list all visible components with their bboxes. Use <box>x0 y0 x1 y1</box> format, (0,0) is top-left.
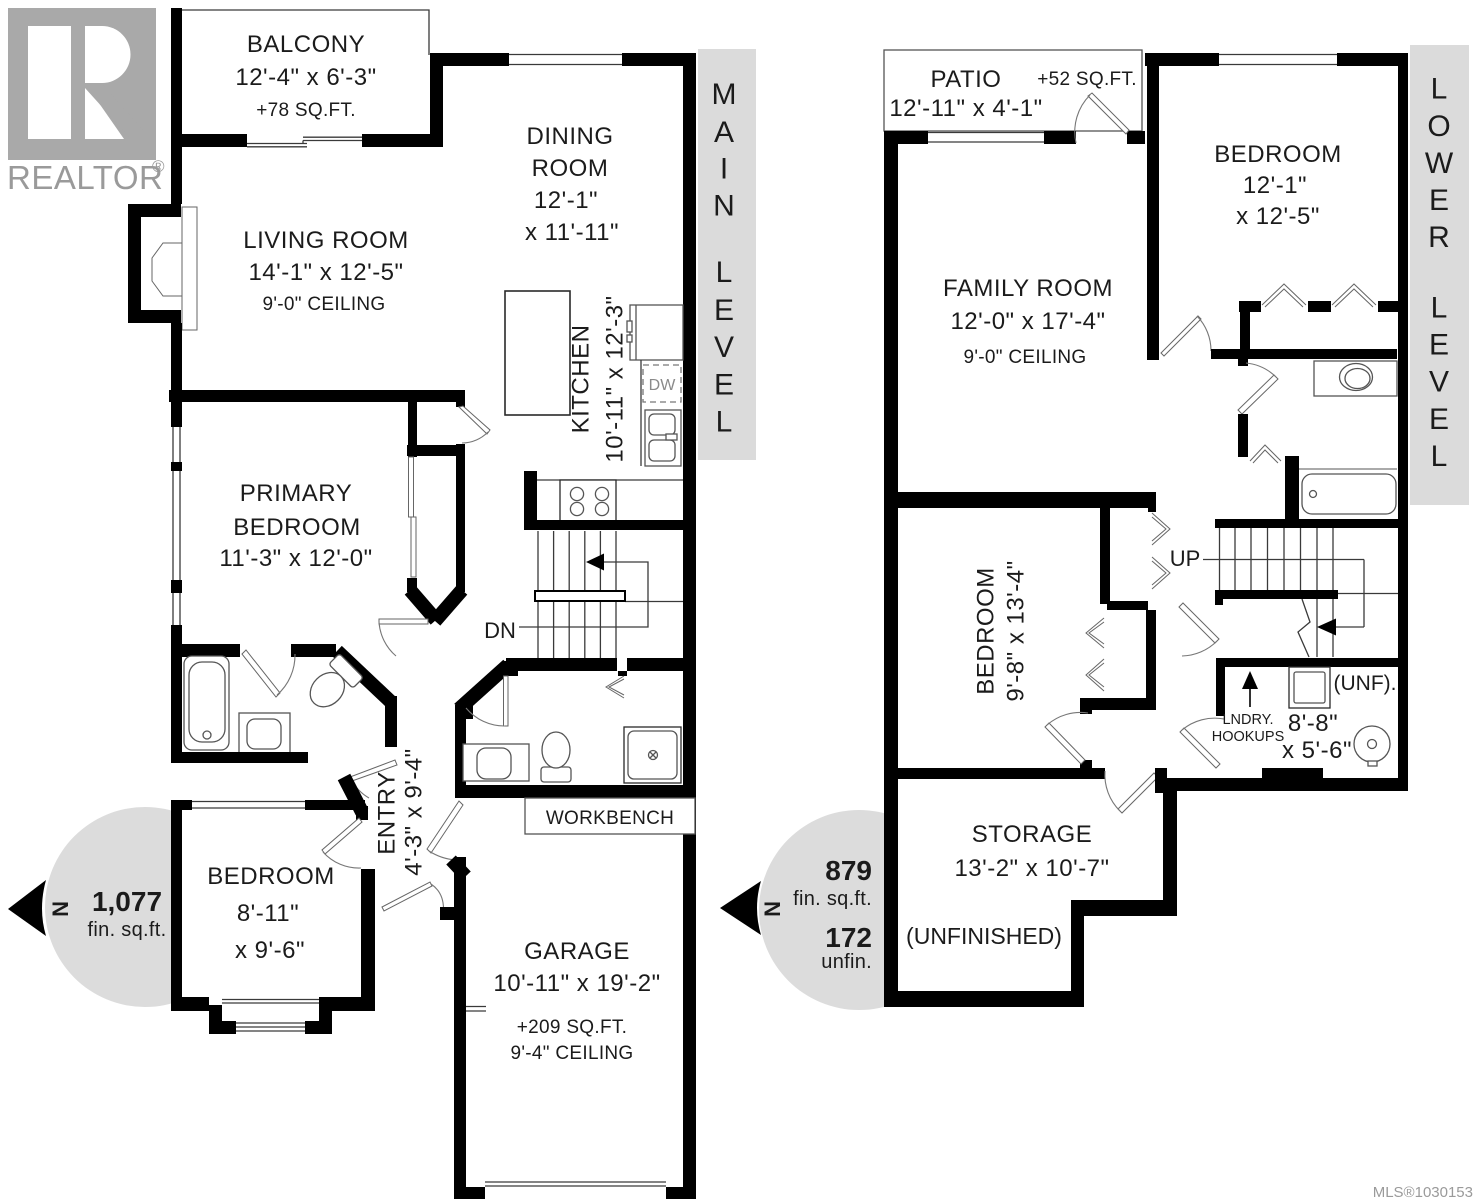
svg-text:(UNFINISHED): (UNFINISHED) <box>906 923 1062 949</box>
svg-text:L: L <box>1431 292 1448 325</box>
svg-text:E: E <box>1429 184 1449 217</box>
svg-text:UP: UP <box>1170 546 1201 571</box>
svg-text:13'-2" x 10'-7": 13'-2" x 10'-7" <box>954 855 1109 882</box>
svg-text:fin. sq.ft.: fin. sq.ft. <box>793 888 872 910</box>
svg-text:+78 SQ.FT.: +78 SQ.FT. <box>256 100 356 121</box>
svg-text:DW: DW <box>649 377 677 394</box>
svg-text:12'-4" x 6'-3": 12'-4" x 6'-3" <box>235 64 376 91</box>
svg-text:O: O <box>1427 110 1450 143</box>
svg-text:R: R <box>1428 221 1450 254</box>
svg-text:879: 879 <box>825 855 872 886</box>
svg-text:GARAGE: GARAGE <box>524 938 630 965</box>
svg-text:PRIMARY: PRIMARY <box>240 480 352 507</box>
svg-text:V: V <box>714 331 734 364</box>
svg-text:172: 172 <box>825 922 872 953</box>
svg-text:8'-11": 8'-11" <box>237 900 299 927</box>
svg-text:10'-11" x 19'-2": 10'-11" x 19'-2" <box>493 970 660 997</box>
svg-text:E: E <box>714 294 734 327</box>
svg-text:8'-8": 8'-8" <box>1288 710 1338 737</box>
svg-text:9'-0" CEILING: 9'-0" CEILING <box>963 347 1086 368</box>
svg-text:+52 SQ.FT.: +52 SQ.FT. <box>1037 69 1137 90</box>
svg-text:L: L <box>1431 73 1448 106</box>
svg-text:14'-1" x 12'-5": 14'-1" x 12'-5" <box>248 259 403 286</box>
svg-text:L: L <box>1431 440 1448 473</box>
svg-text:WORKBENCH: WORKBENCH <box>546 808 674 829</box>
svg-text:9'-4" CEILING: 9'-4" CEILING <box>510 1043 633 1064</box>
svg-text:N: N <box>48 901 73 917</box>
svg-text:unfin.: unfin. <box>821 951 872 973</box>
svg-text:x 12'-5": x 12'-5" <box>1236 203 1320 230</box>
svg-text:N: N <box>713 190 735 223</box>
svg-text:LIVING ROOM: LIVING ROOM <box>243 227 409 254</box>
svg-text:fin. sq.ft.: fin. sq.ft. <box>88 919 167 941</box>
svg-text:x 5'-6": x 5'-6" <box>1282 737 1352 764</box>
svg-text:12'-1": 12'-1" <box>1243 172 1307 199</box>
svg-text:A: A <box>714 116 734 149</box>
svg-text:BALCONY: BALCONY <box>247 31 365 58</box>
svg-text:REALTOR: REALTOR <box>7 159 163 196</box>
svg-text:BEDROOM: BEDROOM <box>207 863 335 890</box>
svg-text:MLS®1030153: MLS®1030153 <box>1373 1184 1473 1200</box>
svg-text:N: N <box>760 901 785 917</box>
svg-text:BEDROOM: BEDROOM <box>1214 141 1342 168</box>
svg-text:+209 SQ.FT.: +209 SQ.FT. <box>517 1017 628 1038</box>
svg-text:12'-0" x 17'-4": 12'-0" x 17'-4" <box>950 308 1105 335</box>
svg-text:x 9'-6": x 9'-6" <box>235 937 305 964</box>
svg-text:M: M <box>712 78 737 111</box>
svg-text:V: V <box>1429 366 1449 399</box>
svg-text:1,077: 1,077 <box>92 886 162 917</box>
svg-text:9'-8" x 13'-4": 9'-8" x 13'-4" <box>1003 560 1030 701</box>
svg-text:L: L <box>716 256 733 289</box>
svg-text:10'-11" x 12'-3": 10'-11" x 12'-3" <box>602 295 629 462</box>
svg-text:9'-0" CEILING: 9'-0" CEILING <box>262 294 385 315</box>
svg-text:E: E <box>714 368 734 401</box>
svg-text:x 11'-11": x 11'-11" <box>525 219 619 246</box>
svg-text:HOOKUPS: HOOKUPS <box>1212 729 1285 745</box>
svg-text:®: ® <box>152 157 165 176</box>
svg-text:ROOM: ROOM <box>532 155 609 182</box>
svg-text:KITCHEN: KITCHEN <box>568 325 595 434</box>
svg-text:4'-3" x 9'-4": 4'-3" x 9'-4" <box>401 748 428 875</box>
svg-text:12'-1": 12'-1" <box>534 187 598 214</box>
svg-text:DN: DN <box>484 618 516 643</box>
svg-text:E: E <box>1429 329 1449 362</box>
svg-text:(UNF).: (UNF). <box>1334 672 1397 695</box>
svg-text:11'-3" x 12'-0": 11'-3" x 12'-0" <box>219 545 372 572</box>
svg-text:ENTRY: ENTRY <box>374 771 401 854</box>
svg-text:BEDROOM: BEDROOM <box>233 514 361 541</box>
svg-text:12'-11" x 4'-1": 12'-11" x 4'-1" <box>889 95 1042 122</box>
svg-text:L: L <box>716 406 733 439</box>
svg-text:DINING: DINING <box>527 123 614 150</box>
svg-text:BEDROOM: BEDROOM <box>973 567 1000 695</box>
svg-text:I: I <box>720 153 728 186</box>
svg-text:PATIO: PATIO <box>931 66 1002 93</box>
svg-text:LNDRY.: LNDRY. <box>1222 712 1273 728</box>
svg-text:FAMILY ROOM: FAMILY ROOM <box>943 275 1113 302</box>
svg-text:E: E <box>1429 403 1449 436</box>
svg-text:STORAGE: STORAGE <box>972 821 1092 848</box>
svg-text:W: W <box>1425 147 1454 180</box>
